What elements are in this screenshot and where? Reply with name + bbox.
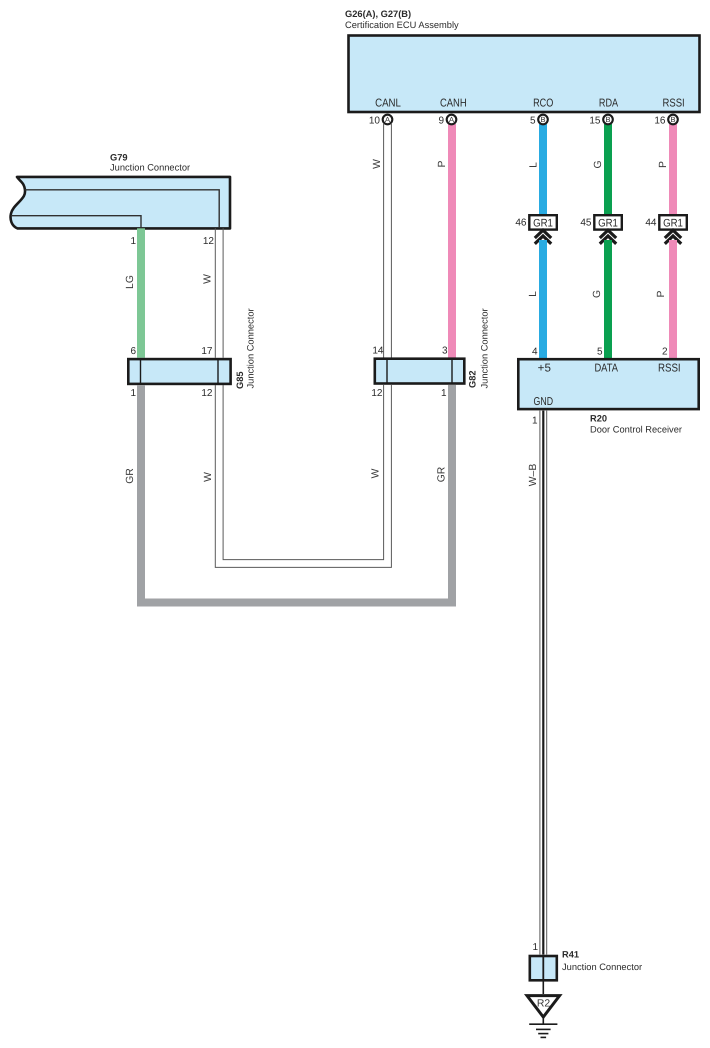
svg-text:CANL: CANL [375, 98, 401, 110]
svg-text:RSSI: RSSI [663, 98, 685, 110]
svg-text:LG: LG [125, 275, 136, 289]
svg-text:P: P [437, 160, 448, 167]
svg-text:GR1: GR1 [598, 217, 618, 229]
svg-text:9: 9 [438, 116, 444, 127]
svg-text:RDA: RDA [599, 98, 619, 110]
svg-text:Junction Connector: Junction Connector [480, 308, 490, 388]
svg-text:17: 17 [201, 346, 213, 357]
svg-text:12: 12 [371, 388, 383, 399]
svg-text:G: G [592, 290, 603, 298]
svg-text:B: B [670, 115, 675, 124]
svg-text:2: 2 [662, 347, 668, 358]
svg-text:45: 45 [580, 218, 592, 229]
svg-text:16: 16 [654, 116, 666, 127]
svg-text:10: 10 [369, 116, 381, 127]
svg-text:Junction Connector: Junction Connector [246, 308, 256, 388]
svg-text:44: 44 [645, 218, 657, 229]
svg-text:5: 5 [597, 347, 603, 358]
svg-text:W: W [371, 468, 382, 478]
svg-text:14: 14 [372, 346, 384, 357]
svg-text:B: B [540, 115, 545, 124]
svg-text:12: 12 [201, 388, 213, 399]
svg-text:G79: G79 [110, 152, 128, 162]
svg-text:R41: R41 [562, 950, 579, 960]
svg-text:P: P [656, 290, 667, 297]
svg-text:Door Control Receiver: Door Control Receiver [590, 424, 682, 434]
svg-text:L: L [529, 162, 540, 168]
svg-text:1: 1 [130, 236, 136, 247]
svg-text:CANH: CANH [440, 98, 467, 110]
svg-text:B: B [605, 115, 610, 124]
svg-text:R20: R20 [590, 414, 607, 424]
svg-text:RSSI: RSSI [658, 362, 681, 374]
svg-text:Junction Connector: Junction Connector [110, 163, 190, 173]
svg-text:1: 1 [532, 415, 538, 426]
svg-text:Junction Connector: Junction Connector [562, 962, 642, 972]
svg-text:W: W [203, 274, 214, 284]
svg-text:G26(A), G27(B): G26(A), G27(B) [345, 9, 411, 19]
svg-text:P: P [658, 161, 669, 168]
svg-text:15: 15 [589, 116, 601, 127]
svg-text:GR: GR [437, 466, 448, 482]
svg-text:46: 46 [515, 218, 527, 229]
svg-text:R2: R2 [537, 999, 551, 1010]
svg-text:12: 12 [203, 236, 215, 247]
svg-text:L: L [528, 291, 539, 297]
svg-text:1: 1 [532, 942, 538, 953]
svg-text:4: 4 [532, 347, 538, 358]
svg-text:G: G [593, 160, 604, 168]
svg-text:G85: G85 [235, 371, 245, 389]
svg-text:G82: G82 [468, 370, 478, 388]
svg-text:W: W [372, 159, 383, 169]
svg-text:5: 5 [530, 116, 536, 127]
svg-text:A: A [449, 115, 454, 124]
svg-text:1: 1 [130, 388, 136, 399]
svg-text:Certification ECU Assembly: Certification ECU Assembly [345, 20, 459, 30]
svg-text:A: A [385, 115, 390, 124]
svg-text:GR1: GR1 [663, 217, 683, 229]
svg-text:W: W [203, 472, 214, 482]
svg-text:6: 6 [130, 346, 136, 357]
svg-text:3: 3 [442, 346, 448, 357]
svg-text:+5: +5 [538, 362, 551, 374]
svg-text:DATA: DATA [594, 362, 618, 374]
svg-text:1: 1 [441, 388, 447, 399]
svg-text:GND: GND [534, 396, 554, 408]
svg-text:RCO: RCO [533, 98, 553, 110]
svg-text:GR1: GR1 [533, 217, 553, 229]
svg-text:GR: GR [125, 468, 136, 484]
svg-text:W–B: W–B [528, 464, 539, 487]
